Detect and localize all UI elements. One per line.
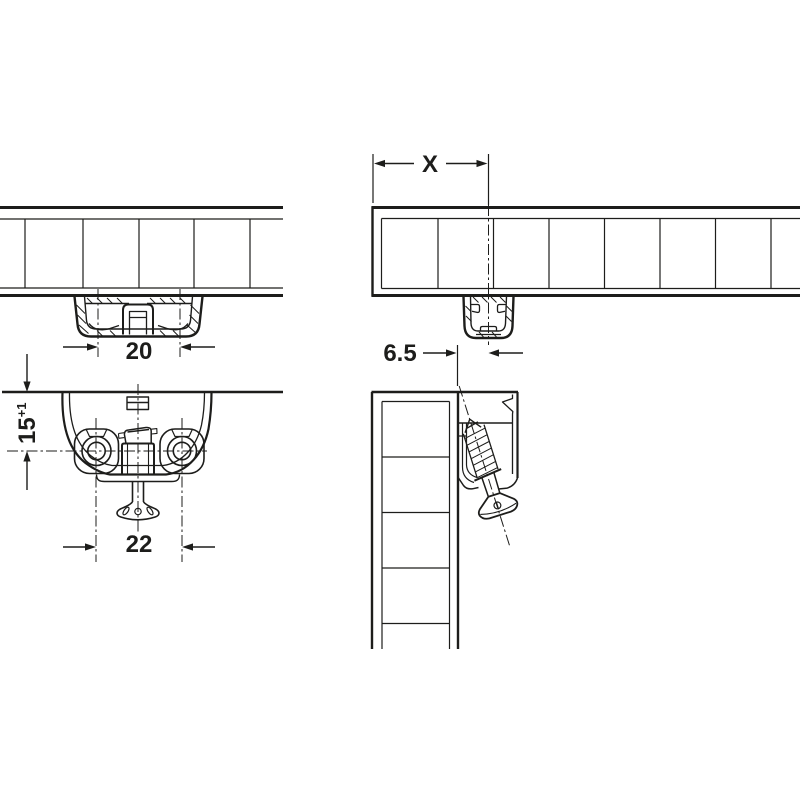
hollow-core-panel-right bbox=[372, 207, 800, 297]
dim-label-x: X bbox=[422, 151, 438, 178]
dim65-arrowhead-right bbox=[489, 349, 500, 356]
panel-inner-lines bbox=[0, 219, 283, 288]
dim20-arrowhead-right bbox=[180, 343, 191, 350]
fitting-right-wall-inner bbox=[503, 395, 513, 475]
dim22-arrowhead-left bbox=[85, 543, 96, 550]
housing-outer-profile bbox=[75, 297, 203, 337]
adapter-housing-cross-section bbox=[75, 297, 203, 337]
panel-inner-lines bbox=[382, 219, 800, 289]
dim65-arrowhead-left bbox=[446, 349, 457, 356]
hollow-core-panel-vertical bbox=[372, 392, 519, 649]
dim-label-20: 20 bbox=[126, 338, 153, 365]
panel-inner-lines bbox=[382, 402, 450, 650]
connector-bracket-front-view bbox=[7, 384, 212, 562]
dimx-arrowhead-right bbox=[477, 160, 488, 167]
housing-center-tab-inner bbox=[130, 312, 147, 335]
dim22-arrowhead-right bbox=[182, 543, 193, 550]
technical-drawing-page: 20 15+1 bbox=[0, 0, 800, 800]
dimension-15: 15+1 bbox=[14, 354, 41, 490]
clip-hook-left bbox=[471, 305, 480, 313]
panel-core-webs bbox=[25, 219, 250, 288]
view-bracket-mounting: 15+1 bbox=[2, 354, 283, 562]
dim20-arrowhead-left bbox=[87, 343, 98, 350]
panel-core-webs bbox=[382, 457, 450, 624]
dim15-arrowhead-down bbox=[23, 382, 30, 393]
fitting-installation-drawing: 20 15+1 bbox=[0, 0, 800, 800]
housing-center-tab bbox=[123, 305, 153, 335]
panel-core-webs bbox=[438, 219, 771, 289]
dim-label-6-5: 6.5 bbox=[383, 340, 416, 367]
hollow-core-panel-horizontal bbox=[0, 208, 283, 296]
fitting-left-wall bbox=[459, 423, 478, 483]
clip-hook-right bbox=[498, 305, 507, 313]
view-shelf-front: 20 bbox=[0, 208, 283, 366]
dim15-arrowhead-up bbox=[23, 451, 30, 462]
dimension-22: 22 bbox=[63, 531, 215, 558]
view-corner-joint bbox=[372, 386, 520, 649]
view-shelf-side: X 6.5 bbox=[372, 151, 800, 386]
dim-label-15: 15+1 bbox=[14, 402, 41, 444]
dimx-arrowhead-left bbox=[374, 160, 385, 167]
dim-label-22: 22 bbox=[126, 531, 153, 558]
bracket-outer-shell bbox=[62, 393, 211, 475]
dimension-6-5: 6.5 bbox=[383, 340, 523, 386]
